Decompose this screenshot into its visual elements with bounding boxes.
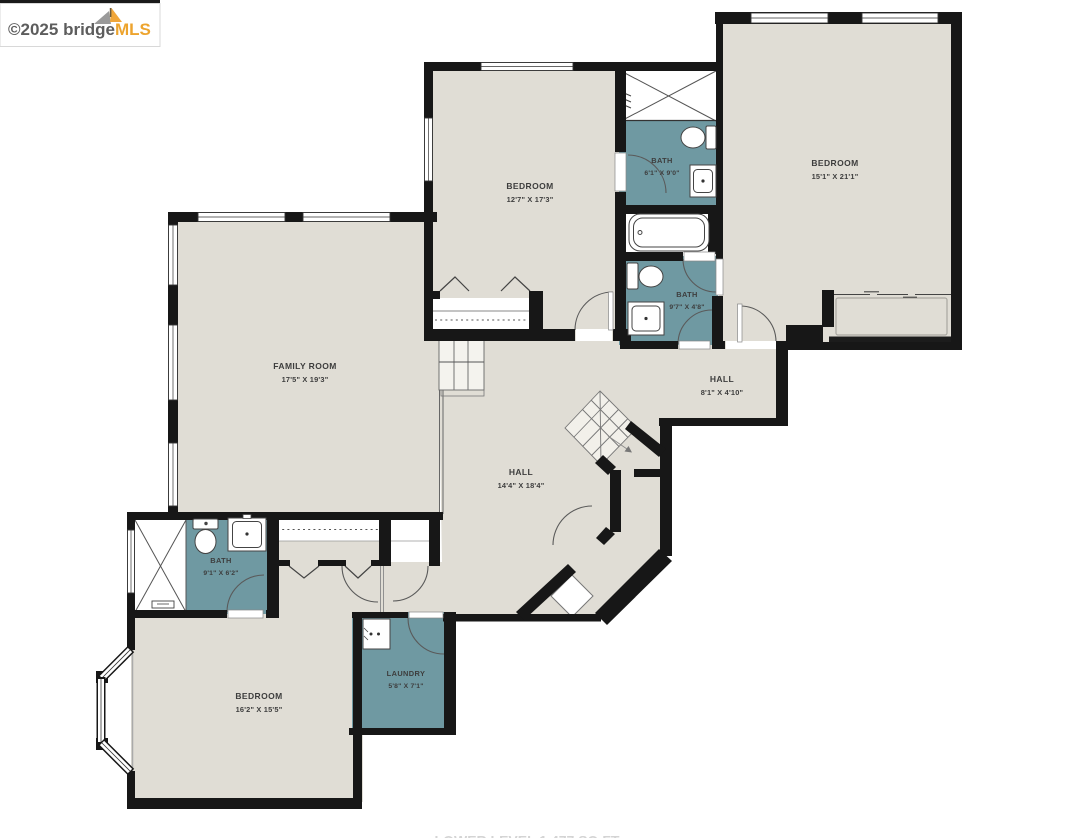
svg-text:BEDROOM: BEDROOM <box>235 691 282 701</box>
svg-text:BEDROOM: BEDROOM <box>506 181 553 191</box>
svg-text:15'1" X 21'1": 15'1" X 21'1" <box>812 172 859 181</box>
svg-text:BATH: BATH <box>210 556 232 565</box>
svg-text:5'8" X 7'1": 5'8" X 7'1" <box>388 683 423 690</box>
svg-text:8'1" X 4'10": 8'1" X 4'10" <box>701 388 744 397</box>
svg-text:16'2" X 15'5": 16'2" X 15'5" <box>236 705 283 714</box>
svg-text:6'1" X 9'0": 6'1" X 9'0" <box>644 170 679 177</box>
svg-text:14'4" X 18'4": 14'4" X 18'4" <box>498 481 545 490</box>
svg-text:LAUNDRY: LAUNDRY <box>387 669 426 678</box>
svg-text:HALL: HALL <box>710 374 734 384</box>
svg-text:12'7" X 17'3": 12'7" X 17'3" <box>507 195 554 204</box>
svg-text:BEDROOM: BEDROOM <box>811 158 858 168</box>
svg-text:9'1" X 6'2": 9'1" X 6'2" <box>203 570 238 577</box>
svg-text:©2025 bridgeMLS: ©2025 bridgeMLS <box>8 20 151 39</box>
svg-text:FAMILY ROOM: FAMILY ROOM <box>273 361 336 371</box>
svg-text:HALL: HALL <box>509 467 533 477</box>
svg-text:9'7" X 4'8": 9'7" X 4'8" <box>669 304 704 311</box>
svg-text:BATH: BATH <box>651 156 673 165</box>
svg-text:LOWER LEVEL 1,477 SQ FT: LOWER LEVEL 1,477 SQ FT <box>435 833 620 838</box>
svg-text:BATH: BATH <box>676 290 698 299</box>
svg-text:17'5" X 19'3": 17'5" X 19'3" <box>282 375 329 384</box>
